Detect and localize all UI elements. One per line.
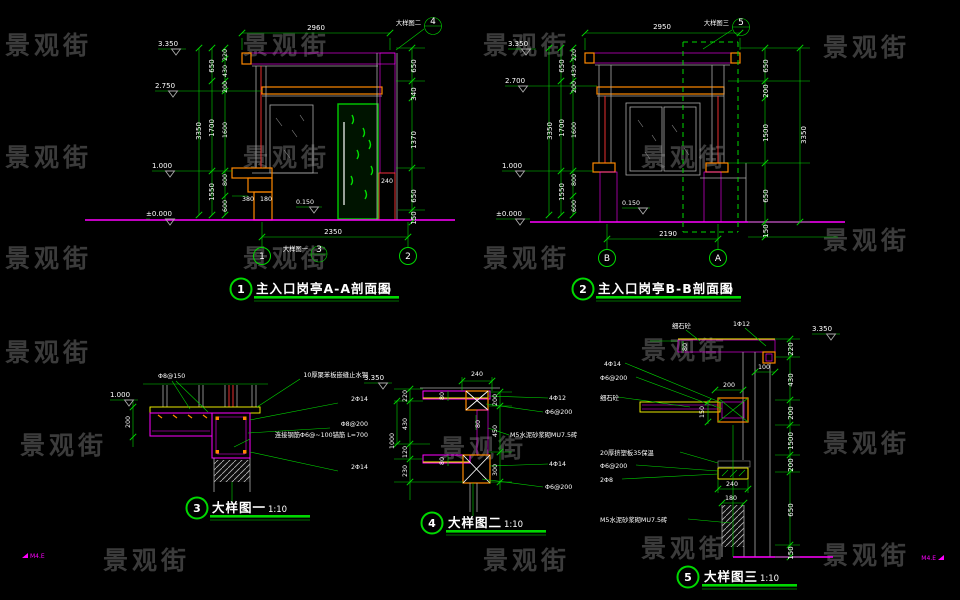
d1-dim: 200 [222, 81, 229, 93]
d2-dim: 1700 [558, 119, 566, 137]
d1-dim: 430 [222, 65, 229, 77]
d1-level: 3.350 [158, 40, 178, 48]
d1-dim: 1550 [208, 183, 216, 201]
watermark: 景观街 [5, 338, 92, 367]
d5-dim: 150 [787, 546, 795, 559]
d3-note: Φ8@200 [341, 420, 368, 428]
d2-dim-bottom: 2190 [659, 230, 677, 238]
d2-dim: 150 [762, 224, 770, 237]
watermark: 景观街 [823, 33, 910, 62]
d2-axis-bubble: A [715, 254, 722, 264]
d5-level: 3.350 [812, 325, 832, 333]
d5-title: 大样图三 [704, 569, 758, 584]
d2-dim: 1550 [558, 183, 566, 201]
d4-dim: 200 [492, 394, 499, 406]
d4-dim: 80 [439, 457, 446, 465]
watermark: 景观街 [641, 534, 728, 563]
d2-level: 3.350 [508, 40, 528, 48]
d4-dim: 230 [402, 465, 409, 477]
d5-note: 20厚挤塑板35保温 [600, 448, 655, 457]
watermark: 景观街 [243, 31, 330, 60]
d5-dim: 150 [699, 406, 706, 418]
d1-axis-bubble: 2 [405, 252, 411, 262]
d3-title-num: 3 [193, 502, 201, 515]
d4-title-num: 4 [428, 517, 436, 530]
d3-title-scale: 1:10 [268, 505, 287, 515]
background [0, 0, 960, 600]
d5-title-scale: 1:10 [760, 574, 779, 584]
d2-dim: 3350 [800, 126, 808, 144]
d4-dim: 1000 [389, 433, 396, 449]
d1-dim: 800 [222, 174, 229, 186]
d5-dim: 1500 [787, 432, 795, 450]
d1-callout-label: 大样图二 [396, 18, 421, 27]
d1-dim: 1370 [410, 131, 418, 149]
d1-callout-num: 4 [430, 17, 436, 27]
d2-dim: 200 [762, 84, 770, 97]
d4-dim: 450 [492, 425, 499, 437]
d1-dim: 650 [208, 59, 216, 72]
d2-dim: 200 [571, 81, 578, 93]
d5-note: 细石砼 [672, 321, 692, 330]
d5-dim: 200 [787, 406, 795, 419]
d5-dim: 200 [723, 382, 735, 389]
d4-note: M5水泥砂浆砌MU7.5砖 [510, 430, 578, 439]
d1-title-scale: 1:30 [372, 286, 391, 296]
d2-dim: 3350 [546, 122, 554, 140]
d4-note: 4Φ14 [549, 461, 566, 468]
d2-level: ±0.000 [496, 210, 522, 218]
d5-note: 4Φ14 [604, 361, 621, 368]
d2-title-scale: 1:30 [714, 286, 733, 296]
d2-level: 2.700 [505, 77, 525, 85]
d2-dim: 430 [571, 65, 578, 77]
d4-note: Φ6@200 [545, 408, 572, 416]
d2-callout-num: 5 [738, 18, 744, 28]
d2-dim: 650 [762, 189, 770, 202]
d2-dim: 1500 [762, 124, 770, 142]
watermark: 景观街 [823, 429, 910, 458]
d1-ref-label: 大样图一 [283, 244, 309, 253]
d1-dim: 1600 [222, 122, 229, 138]
d4-level: 3.350 [364, 374, 384, 382]
watermark: 景观街 [641, 143, 728, 172]
d4-dim: 220 [402, 390, 409, 402]
d1-dim-ledge: 380 [242, 196, 254, 203]
d5-dim: 220 [787, 342, 795, 355]
d5-dim: 180 [725, 495, 737, 502]
d5-dim: 200 [787, 458, 795, 471]
d5-dim: 80 [682, 343, 689, 351]
d5-dim: 430 [787, 373, 795, 386]
d4-dim-top: 240 [471, 371, 483, 378]
d4-title-scale: 1:10 [504, 520, 523, 530]
d1-dim: 150 [410, 211, 418, 224]
d1-title-num: 1 [237, 283, 245, 296]
d1-dim: 650 [410, 59, 418, 72]
d1-floor-level: 0.150 [296, 199, 314, 206]
d5-note: 2Φ8 [600, 477, 613, 484]
d2-level: 1.000 [502, 162, 522, 170]
watermark: 景观街 [5, 244, 92, 273]
d2-callout-label: 大样图三 [704, 18, 729, 27]
d1-axis-bubble: 1 [259, 252, 265, 262]
d4-note: Φ6@200 [545, 483, 572, 491]
d5-dim: 650 [787, 503, 795, 516]
watermark: 景观街 [483, 244, 570, 273]
d2-floor-level: 0.150 [622, 200, 640, 207]
watermark: 景观街 [483, 546, 570, 575]
d2-title-block: 2 主入口岗亭B-B剖面图 1:30 [573, 279, 742, 302]
d3-title: 大样图一 [212, 500, 266, 515]
d3-note: 连接钢筋Φ6@~100锚筋 L=700 [275, 430, 368, 439]
d2-title: 主入口岗亭B-B剖面图 [598, 281, 733, 296]
d2-dim: 600 [571, 200, 578, 212]
d3-note: 2Φ14 [351, 396, 368, 403]
d2-title-num: 2 [579, 283, 587, 296]
d3-note: 10厚聚苯板嵌缝止水钢 [303, 370, 368, 379]
d4-note: 4Φ12 [549, 395, 566, 402]
d1-level: ±0.000 [146, 210, 172, 218]
d4-dim: 120 [402, 446, 409, 458]
d1-level: 1.000 [152, 162, 172, 170]
watermark: 景观街 [103, 546, 190, 575]
d2-dim: 220 [571, 49, 578, 61]
d5-note: 细石砼 [600, 393, 620, 402]
d5-rebar-label: 1Φ12 [733, 321, 750, 328]
watermark: 景观街 [5, 31, 92, 60]
d5-title-num: 5 [684, 571, 692, 584]
d1-dim: 1700 [208, 119, 216, 137]
d3-note: 2Φ14 [351, 464, 368, 471]
d1-dim-col: 240 [381, 178, 393, 185]
d2-dim: 650 [558, 59, 566, 72]
d5-note: Φ6@200 [600, 462, 627, 470]
d2-axis-bubble: B [604, 254, 610, 264]
d5-dim: 100 [758, 364, 770, 371]
d5-dim: 240 [726, 481, 738, 488]
d1-ref-num: 3 [316, 245, 322, 255]
d1-level: 2.750 [155, 82, 175, 90]
d1-dim: 600 [222, 200, 229, 212]
d2-dim-top: 2950 [653, 23, 671, 31]
d3-level: 1.000 [110, 391, 130, 399]
d2-dim: 650 [762, 59, 770, 72]
d4-dim: 80 [475, 420, 482, 428]
d3-rebar-label: Φ8@150 [158, 372, 185, 380]
corner-mark-right: M4.E [921, 555, 936, 562]
d2-dim: 1600 [571, 122, 578, 138]
watermark: 景观街 [20, 431, 107, 460]
d1-dim: 650 [410, 189, 418, 202]
watermark: 景观街 [823, 226, 910, 255]
d1-title-block: 1 主入口岗亭A-A剖面图 1:30 [231, 279, 400, 302]
cad-sheet: 景观街 景观街 景观街 景观街 景观街 景观街 景观街 景观街 景观街 景观街 … [0, 0, 960, 600]
d3-dim: 200 [125, 416, 132, 428]
d5-note: Φ6@200 [600, 374, 627, 382]
d4-dim: 300 [492, 464, 499, 476]
corner-mark-left: M4.E [30, 553, 45, 560]
watermark: 景观街 [5, 143, 92, 172]
d1-dim-bottom: 2350 [324, 228, 342, 236]
d1-dim: 3350 [195, 122, 203, 140]
watermark: 景观街 [823, 541, 910, 570]
d4-dim: 80 [439, 392, 446, 400]
d4-title: 大样图二 [448, 515, 502, 530]
cad-canvas: 景观街 景观街 景观街 景观街 景观街 景观街 景观街 景观街 景观街 景观街 … [0, 0, 960, 600]
d1-dim: 340 [410, 87, 418, 100]
d5-note: M5水泥砂浆砌MU7.5砖 [600, 515, 668, 524]
d1-dim-top: 2960 [307, 24, 325, 32]
d1-dim-ledge: 180 [260, 196, 272, 203]
d4-dim: 430 [402, 418, 409, 430]
d2-dim: 800 [571, 174, 578, 186]
d1-dim: 220 [222, 49, 229, 61]
